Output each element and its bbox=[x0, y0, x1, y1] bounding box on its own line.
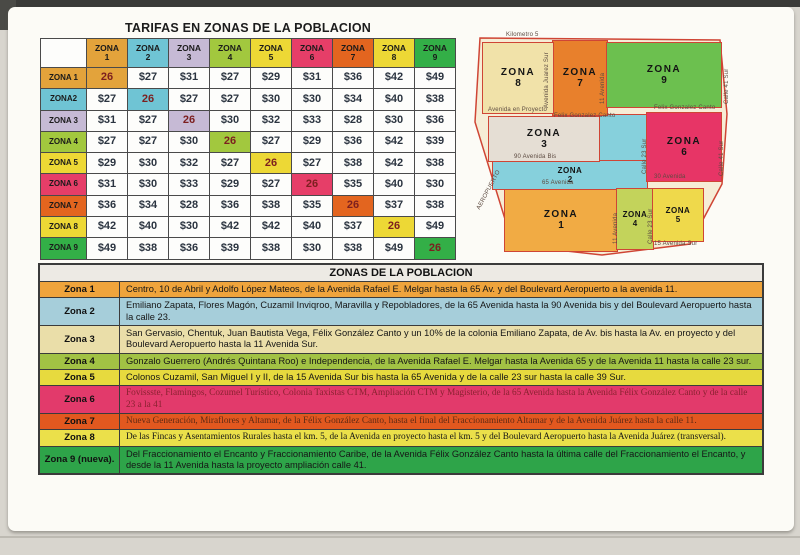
fare-corner-cell bbox=[41, 39, 87, 68]
fare-cell: 26 bbox=[169, 111, 210, 132]
fare-cell: $38 bbox=[251, 238, 292, 259]
street-label: 11 Avenida bbox=[613, 213, 619, 244]
map-zone-number: 1 bbox=[558, 221, 564, 231]
fare-cell: $34 bbox=[333, 89, 374, 110]
fare-row-header: ZONA 6 bbox=[41, 174, 87, 195]
fare-cell: $38 bbox=[415, 196, 456, 217]
fare-cell: $40 bbox=[292, 217, 333, 238]
fare-row-header: ZONA2 bbox=[41, 89, 87, 110]
fare-cell: $33 bbox=[169, 174, 210, 195]
legend-zone-description: Del Fraccionamiento el Encanto y Fraccio… bbox=[120, 447, 762, 474]
col-header-number: 2 bbox=[146, 53, 151, 62]
map-zone-number: 9 bbox=[661, 76, 667, 86]
street-label: Calle 23 Sur bbox=[642, 139, 648, 174]
legend-zone-description: Centro, 10 de Abril y Adolfo López Mateo… bbox=[120, 282, 762, 297]
fare-cell: $40 bbox=[128, 217, 169, 238]
fare-cell: $31 bbox=[87, 174, 128, 195]
fare-cell: $30 bbox=[169, 217, 210, 238]
legend-zone-label: Zona 5 bbox=[40, 370, 120, 385]
card-bottom-edge bbox=[0, 536, 800, 538]
fare-cell: $28 bbox=[333, 111, 374, 132]
map-zone-1: ZONA1 bbox=[504, 188, 618, 252]
fare-cell: $49 bbox=[374, 238, 415, 259]
street-label: 11 Avenida bbox=[600, 73, 606, 104]
legend-zone-label: Zona 1 bbox=[40, 282, 120, 297]
fare-cell: $38 bbox=[333, 153, 374, 174]
fare-cell: $34 bbox=[128, 196, 169, 217]
fare-cell: $38 bbox=[415, 153, 456, 174]
fare-cell: $27 bbox=[251, 174, 292, 195]
fare-cell: $42 bbox=[251, 217, 292, 238]
street-label: Calle 41 Sur bbox=[719, 141, 725, 176]
legend-row: Zona 1Centro, 10 de Abril y Adolfo López… bbox=[40, 282, 762, 298]
fare-row-header: ZONA 8 bbox=[41, 217, 87, 238]
fare-cell: $30 bbox=[292, 238, 333, 259]
fare-cell: $27 bbox=[128, 132, 169, 153]
fare-cell: $27 bbox=[169, 89, 210, 110]
fare-row-header: ZONA 4 bbox=[41, 132, 87, 153]
fare-cell: $29 bbox=[292, 132, 333, 153]
legend-row: Zona 4Gonzalo Guerrero (Andrés Quintana … bbox=[40, 354, 762, 370]
fare-cell: $36 bbox=[210, 196, 251, 217]
map-zone-6: ZONA6 bbox=[646, 112, 722, 182]
fare-cell: $27 bbox=[128, 111, 169, 132]
map-zone-number: 4 bbox=[633, 220, 637, 228]
legend-row: Zona 9 (nueva).Del Fraccionamiento el En… bbox=[40, 447, 762, 474]
map-zone-2-upper bbox=[598, 114, 648, 162]
fare-cell: $29 bbox=[210, 174, 251, 195]
fare-section: TARIFAS EN ZONAS DE LA POBLACION ZONA1ZO… bbox=[40, 21, 456, 260]
fare-col-header: ZONA6 bbox=[292, 39, 333, 68]
legend-row: Zona 8De las Fincas y Asentamientos Rura… bbox=[40, 430, 762, 446]
street-label: 90 Avenida Bis bbox=[514, 154, 556, 160]
fare-cell: 26 bbox=[292, 174, 333, 195]
street-label: 65 Avenida bbox=[542, 180, 574, 186]
fare-cell: $40 bbox=[374, 89, 415, 110]
fare-cell: $42 bbox=[210, 217, 251, 238]
fare-cell: $42 bbox=[374, 68, 415, 89]
street-label: Calle 23 Sur bbox=[648, 209, 654, 244]
col-header-number: 1 bbox=[105, 53, 110, 62]
fare-cell: $42 bbox=[87, 217, 128, 238]
map-zone-number: 8 bbox=[515, 79, 521, 89]
fare-cell: $30 bbox=[374, 111, 415, 132]
fare-cell: $36 bbox=[87, 196, 128, 217]
fare-cell: $38 bbox=[415, 89, 456, 110]
street-label: Calle 41 Sur bbox=[724, 69, 730, 104]
street-label: 30 Avenida bbox=[654, 174, 686, 180]
zones-legend: ZONAS DE LA POBLACION Zona 1Centro, 10 d… bbox=[38, 263, 764, 475]
map-zone-number: 7 bbox=[577, 79, 583, 89]
photo-top-shadow bbox=[0, 0, 800, 7]
fare-cell: $49 bbox=[87, 238, 128, 259]
map-zone-number: 5 bbox=[676, 216, 680, 224]
street-label: Felix Gonzalez Canto bbox=[554, 113, 615, 119]
street-label: Kilometro 5 bbox=[506, 32, 539, 38]
fare-cell: $30 bbox=[251, 89, 292, 110]
fare-cell: $42 bbox=[374, 153, 415, 174]
fare-cell: $27 bbox=[87, 89, 128, 110]
fare-cell: $27 bbox=[251, 132, 292, 153]
street-label: Avenida Juarez Sur bbox=[544, 52, 550, 108]
fare-row-header: ZONA 1 bbox=[41, 68, 87, 89]
col-header-number: 8 bbox=[392, 53, 397, 62]
fare-cell: $49 bbox=[415, 68, 456, 89]
fare-cell: $30 bbox=[128, 153, 169, 174]
fare-cell: $38 bbox=[128, 238, 169, 259]
fare-cell: $32 bbox=[251, 111, 292, 132]
legend-title: ZONAS DE LA POBLACION bbox=[40, 265, 762, 282]
fare-cell: $31 bbox=[169, 68, 210, 89]
fare-cell: $35 bbox=[333, 174, 374, 195]
fare-row-header: ZONA 5 bbox=[41, 153, 87, 174]
fare-cell: $35 bbox=[292, 196, 333, 217]
fare-cell: $33 bbox=[292, 111, 333, 132]
legend-zone-description: San Gervasio, Chentuk, Juan Bautista Veg… bbox=[120, 326, 762, 353]
col-header-number: 5 bbox=[269, 53, 274, 62]
legend-zone-label: Zona 6 bbox=[40, 386, 120, 413]
legend-row: Zona 2Emiliano Zapata, Flores Magón, Cuz… bbox=[40, 298, 762, 326]
col-header-number: 4 bbox=[228, 53, 233, 62]
fare-col-header: ZONA8 bbox=[374, 39, 415, 68]
fare-cell: $27 bbox=[292, 153, 333, 174]
fare-col-header: ZONA3 bbox=[169, 39, 210, 68]
fare-cell: $36 bbox=[333, 68, 374, 89]
fare-cell: $27 bbox=[128, 68, 169, 89]
fare-cell: 26 bbox=[415, 238, 456, 259]
legend-row: Zona 7Nueva Generación, Miraflores y Alt… bbox=[40, 414, 762, 430]
fare-table: ZONA1ZONA2ZONA3ZONA4ZONA5ZONA6ZONA7ZONA8… bbox=[40, 38, 456, 260]
fare-cell: 26 bbox=[251, 153, 292, 174]
legend-zone-label: Zona 4 bbox=[40, 354, 120, 369]
fare-cell: 26 bbox=[87, 68, 128, 89]
fare-cell: 26 bbox=[128, 89, 169, 110]
fare-cell: 26 bbox=[333, 196, 374, 217]
col-header-number: 3 bbox=[187, 53, 192, 62]
fare-cell: $37 bbox=[333, 217, 374, 238]
fare-cell: $38 bbox=[251, 196, 292, 217]
legend-zone-label: Zona 8 bbox=[40, 430, 120, 445]
legend-row: Zona 5Colonos Cuzamil, San Miguel I y II… bbox=[40, 370, 762, 386]
street-label: Felix Gonzalez Canto bbox=[654, 105, 715, 111]
fare-col-header: ZONA5 bbox=[251, 39, 292, 68]
fare-col-header: ZONA7 bbox=[333, 39, 374, 68]
street-label: Avenida en Proyecto bbox=[488, 107, 547, 113]
map-zone-number: 3 bbox=[541, 140, 547, 150]
fare-cell: $39 bbox=[210, 238, 251, 259]
fare-cell: $39 bbox=[415, 132, 456, 153]
legend-row: Zona 6Fovissste, Flamingos, Cozumel Turí… bbox=[40, 386, 762, 414]
col-header-number: 7 bbox=[351, 53, 356, 62]
fare-cell: $40 bbox=[374, 174, 415, 195]
fare-cell: $36 bbox=[333, 132, 374, 153]
legend-rows: Zona 1Centro, 10 de Abril y Adolfo López… bbox=[40, 282, 762, 473]
legend-zone-label: Zona 2 bbox=[40, 298, 120, 325]
fare-cell: $27 bbox=[210, 68, 251, 89]
fare-col-header: ZONA9 bbox=[415, 39, 456, 68]
map-zone-9: ZONA9 bbox=[606, 42, 722, 108]
fare-cell: $29 bbox=[87, 153, 128, 174]
fare-cell: $30 bbox=[415, 174, 456, 195]
fare-cell: $30 bbox=[128, 174, 169, 195]
map-zone-number: 6 bbox=[681, 148, 687, 158]
fare-cell: $27 bbox=[87, 132, 128, 153]
map-zone-5: ZONA5 bbox=[652, 188, 704, 242]
zones-map: ZONA1ZONA2ZONA3ZONA4ZONA5ZONA6ZONA7ZONA8… bbox=[456, 12, 792, 260]
legend-zone-description: Nueva Generación, Miraflores y Altamar, … bbox=[120, 414, 762, 429]
fare-cell: 26 bbox=[374, 217, 415, 238]
fare-cell: $36 bbox=[415, 111, 456, 132]
street-label: 15 Avenida Sur bbox=[654, 241, 697, 247]
fare-cell: $28 bbox=[169, 196, 210, 217]
fare-cell: $38 bbox=[333, 238, 374, 259]
legend-zone-description: Fovissste, Flamingos, Cozumel Turístico,… bbox=[120, 386, 762, 413]
legend-row: Zona 3San Gervasio, Chentuk, Juan Bautis… bbox=[40, 326, 762, 354]
legend-zone-description: De las Fincas y Asentamientos Rurales ha… bbox=[120, 430, 762, 445]
fare-cell: $36 bbox=[169, 238, 210, 259]
photo-background: TARIFAS EN ZONAS DE LA POBLACION ZONA1ZO… bbox=[0, 0, 800, 555]
fare-cell: $49 bbox=[415, 217, 456, 238]
fare-cell: 26 bbox=[210, 132, 251, 153]
fare-cell: $29 bbox=[251, 68, 292, 89]
fare-col-header: ZONA4 bbox=[210, 39, 251, 68]
fare-cell: $30 bbox=[169, 132, 210, 153]
fare-cell: $37 bbox=[374, 196, 415, 217]
fare-cell: $31 bbox=[292, 68, 333, 89]
legend-zone-label: Zona 3 bbox=[40, 326, 120, 353]
col-header-number: 6 bbox=[310, 53, 315, 62]
fare-cell: $31 bbox=[87, 111, 128, 132]
legend-zone-description: Colonos Cuzamil, San Miguel I y II, de l… bbox=[120, 370, 762, 385]
legend-zone-description: Gonzalo Guerrero (Andrés Quintana Roo) e… bbox=[120, 354, 762, 369]
fare-row-header: ZONA 3 bbox=[41, 111, 87, 132]
legend-zone-description: Emiliano Zapata, Flores Magón, Cuzamil I… bbox=[120, 298, 762, 325]
fare-table-title: TARIFAS EN ZONAS DE LA POBLACION bbox=[40, 21, 456, 35]
legend-zone-label: Zona 9 (nueva). bbox=[40, 447, 120, 474]
fare-cell: $42 bbox=[374, 132, 415, 153]
fare-row-header: ZONA 7 bbox=[41, 196, 87, 217]
fare-cell: $27 bbox=[210, 153, 251, 174]
legend-zone-label: Zona 7 bbox=[40, 414, 120, 429]
fare-col-header: ZONA2 bbox=[128, 39, 169, 68]
col-header-number: 9 bbox=[433, 53, 438, 62]
fare-cell: $30 bbox=[210, 111, 251, 132]
fare-cell: $27 bbox=[210, 89, 251, 110]
fare-cell: $30 bbox=[292, 89, 333, 110]
fare-row-header: ZONA 9 bbox=[41, 238, 87, 259]
fare-cell: $32 bbox=[169, 153, 210, 174]
fare-col-header: ZONA1 bbox=[87, 39, 128, 68]
